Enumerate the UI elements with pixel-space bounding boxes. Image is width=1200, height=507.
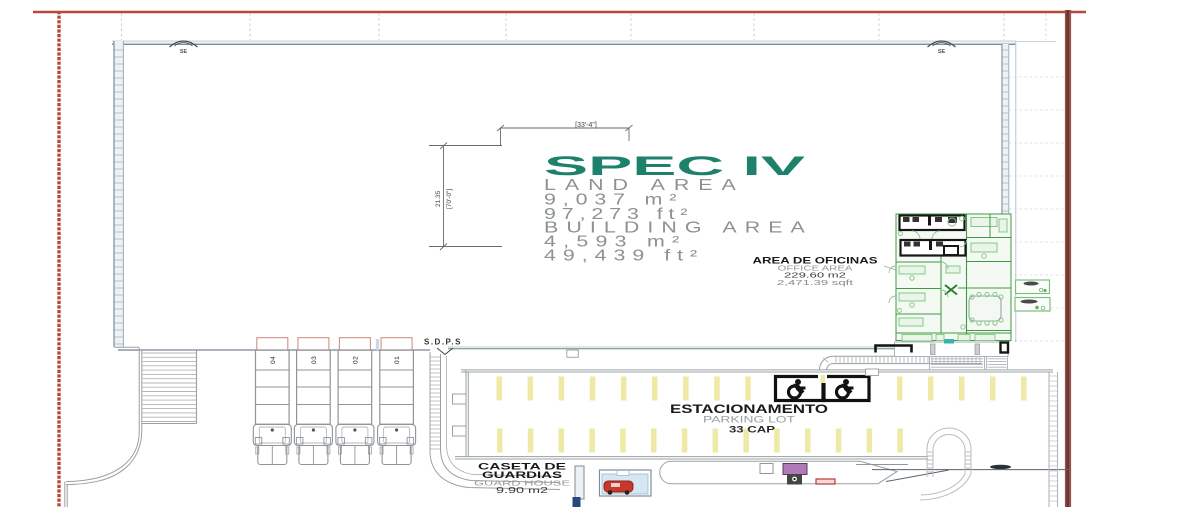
svg-text:PARKING LOT: PARKING LOT — [703, 414, 796, 424]
svg-text:S.D.P.S: S.D.P.S — [424, 338, 462, 347]
svg-text:[70'-0"]: [70'-0"] — [446, 189, 453, 209]
svg-text:LAND AREA: LAND AREA — [544, 176, 736, 193]
svg-text:03: 03 — [311, 356, 318, 364]
svg-text:01: 01 — [394, 356, 401, 364]
svg-text:33 CAP: 33 CAP — [729, 425, 776, 436]
svg-text:9.90 m2: 9.90 m2 — [496, 486, 548, 495]
svg-text:2,471.39 sqft: 2,471.39 sqft — [777, 278, 855, 287]
svg-text:04: 04 — [270, 356, 277, 364]
svg-text:[33'-4"]: [33'-4"] — [575, 122, 597, 129]
svg-text:02: 02 — [352, 356, 359, 364]
svg-text:SE: SE — [180, 49, 188, 55]
svg-text:21.35: 21.35 — [435, 190, 442, 207]
svg-text:AREA DE OFICINAS: AREA DE OFICINAS — [753, 255, 878, 265]
svg-text:SE: SE — [938, 49, 946, 55]
